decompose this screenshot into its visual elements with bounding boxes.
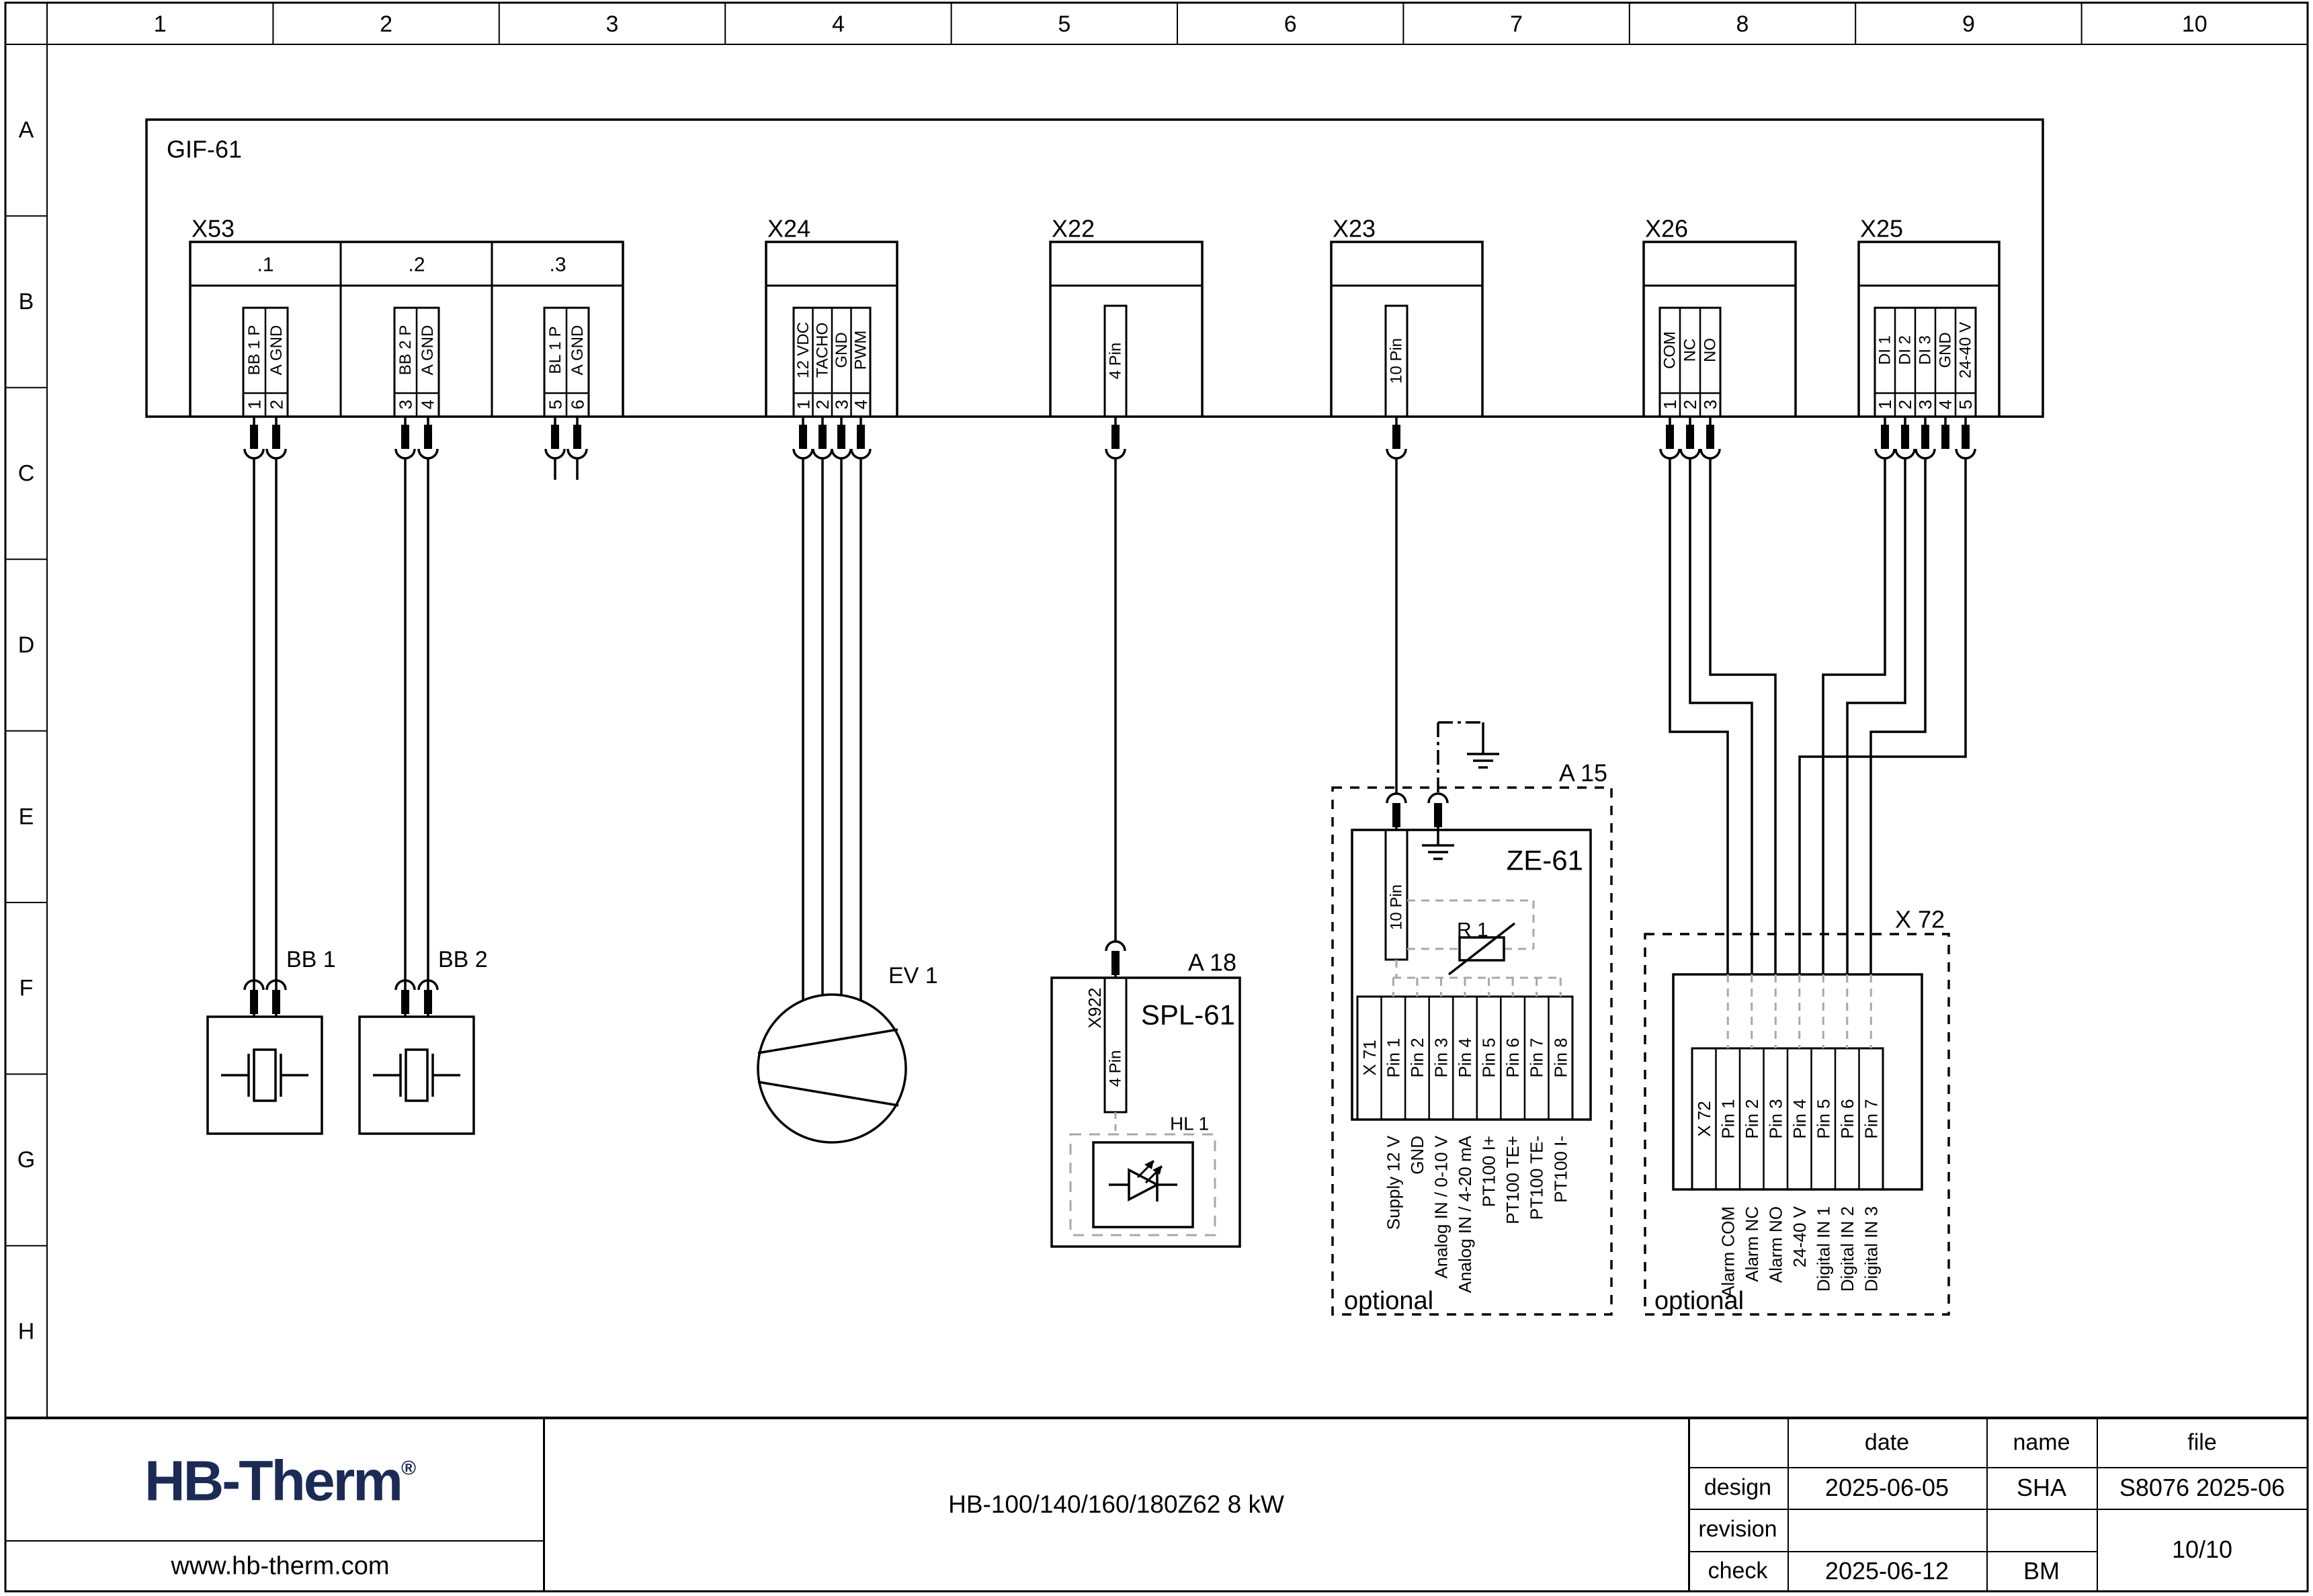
pin-count-label: 4 Pin	[1107, 343, 1125, 380]
pin-signal-label: 12 VDC	[794, 322, 812, 378]
plug-pin	[818, 425, 827, 449]
socket-arc	[832, 449, 851, 458]
pin-signal-label: DI 3	[1917, 335, 1935, 365]
module-a15-ze61: A 15ZE-6110 PinR 1X 71Pin 1Pin 2Pin 3Pin…	[1333, 722, 1611, 1315]
socket-arc	[1701, 449, 1720, 458]
schematic-page: 12345678910ABCDEFGHGIF-61X53.1.2.3BB 1 P…	[0, 0, 2313, 1596]
pin-signal-label: BB 2 P	[396, 325, 415, 376]
fan-circle	[758, 995, 906, 1142]
logo-text: HB-Therm	[144, 1450, 401, 1513]
signal-label: Alarm NC	[1742, 1206, 1762, 1282]
module-label: A 18	[1188, 949, 1236, 976]
plug-pin	[250, 425, 258, 449]
connector-group-label: .3	[549, 254, 566, 276]
grid-column-label: 5	[1058, 11, 1070, 37]
pin-number: 2	[267, 400, 287, 409]
socket-arc	[546, 449, 564, 458]
shape	[254, 1050, 276, 1101]
grid-row-label: C	[18, 461, 35, 487]
pin-number: 3	[396, 400, 416, 409]
terminal-pin-label: Pin 6	[1503, 1038, 1523, 1077]
terminal-pin-label: Pin 6	[1837, 1099, 1857, 1138]
socket-arc	[1387, 794, 1406, 803]
title-block: HB-Therm® www.hb-therm.com HB-100/140/16…	[5, 1417, 2308, 1591]
plug-pin	[1434, 803, 1442, 827]
pin-number: 1	[1660, 400, 1680, 409]
component-label: BB 1	[286, 947, 336, 972]
signal-label: Analog IN / 0-10 V	[1431, 1135, 1451, 1278]
wires	[254, 458, 1966, 1001]
signal-label: Digital IN 1	[1813, 1206, 1833, 1292]
divider	[2097, 1417, 2098, 1591]
socket-arc	[1429, 794, 1447, 803]
row-label-design: design	[1704, 1475, 1771, 1501]
grid-column-label: 8	[1736, 11, 1749, 37]
design-name: SHA	[2017, 1474, 2066, 1502]
connector-x53: X53.1.2.3BB 1 P1A GND2BB 2 P3A GND4BL 1 …	[190, 215, 623, 459]
website-link[interactable]: www.hb-therm.com	[171, 1552, 389, 1581]
pin-count-label: 4 Pin	[1107, 1050, 1125, 1087]
terminal-pin-label: Pin 8	[1550, 1038, 1570, 1077]
module-x72: X 72X 72Pin 1Pin 2Pin 3Pin 4Pin 5Pin 6Pi…	[1645, 906, 1949, 1316]
main-unit-label: GIF-61	[167, 136, 242, 163]
wire-alarm-com	[1670, 458, 1728, 974]
grid-row-label: A	[19, 118, 34, 143]
connector-x22: X224 Pin	[1050, 215, 1202, 459]
connector-group-label: .2	[408, 254, 425, 276]
plug-pin	[1962, 425, 1970, 449]
grid-column-label: 9	[1962, 11, 1975, 37]
terminal-pin-label: Pin 1	[1718, 1099, 1738, 1138]
pin-signal-label: TACHO	[813, 323, 831, 378]
pin-signal-label: A GND	[267, 325, 286, 376]
terminal-pin-label: Pin 2	[1407, 1038, 1427, 1077]
socket-arc	[851, 449, 870, 458]
grid-row-label: D	[18, 632, 35, 658]
plug-pin	[1111, 425, 1120, 449]
terminal-pin-label: Pin 7	[1861, 1099, 1881, 1138]
check-date: 2025-06-12	[1825, 1557, 1949, 1585]
signal-label: Alarm COM	[1718, 1206, 1738, 1298]
plug-pin	[424, 425, 432, 449]
plug-pin	[1921, 425, 1929, 449]
pin-signal-label: GND	[833, 332, 851, 368]
grid-row-label: F	[19, 976, 34, 1001]
shape	[758, 1082, 898, 1105]
socket-arc	[794, 449, 812, 458]
socket-arc	[1106, 941, 1125, 951]
socket-arc	[1876, 449, 1894, 458]
wire-digital-in-1	[1823, 458, 1885, 974]
row-label-revision: revision	[1698, 1517, 1777, 1543]
pin-count-label: 10 Pin	[1388, 338, 1406, 384]
pin-number: 1	[1875, 400, 1895, 409]
pin-signal-label: A GND	[569, 325, 587, 376]
shape	[1105, 978, 1126, 1112]
pin-signal-label: NO	[1701, 338, 1720, 362]
plug-pin	[401, 990, 409, 1014]
check-name: BM	[2023, 1557, 2060, 1585]
file-value: S8076 2025-06	[2119, 1474, 2285, 1502]
plug-pin	[1111, 951, 1120, 975]
grid-column-label: 4	[832, 11, 845, 37]
socket-arc	[1660, 449, 1679, 458]
shape	[406, 1050, 427, 1101]
row-label-check: check	[1708, 1558, 1768, 1585]
plug-pin	[272, 425, 280, 449]
plug-pin	[424, 990, 432, 1014]
socket-arc	[267, 449, 286, 458]
plug-pin	[1686, 425, 1694, 449]
signal-label: PT100 I-	[1550, 1136, 1570, 1203]
terminal-pin-label: Pin 3	[1765, 1099, 1785, 1138]
socket-arc	[396, 449, 415, 458]
divider	[5, 1540, 543, 1542]
connector-label: X922	[1085, 988, 1105, 1029]
divider	[1688, 1509, 2308, 1510]
plug-pin	[857, 425, 865, 449]
pin-signal-label: PWM	[851, 331, 870, 370]
socket-arc	[568, 449, 587, 458]
pin-number: 5	[1955, 400, 1976, 409]
connector-x25: X25DI 11DI 22DI 33GND424-40 V5	[1859, 215, 1999, 459]
pin-signal-label: DI 1	[1876, 335, 1894, 365]
design-date: 2025-06-05	[1825, 1474, 1949, 1502]
signal-label: Supply 12 V	[1383, 1135, 1403, 1230]
pin-signal-label: GND	[1937, 332, 1955, 368]
col-header-name: name	[2013, 1430, 2070, 1456]
shape	[1859, 242, 1999, 417]
plug-pin	[551, 425, 559, 449]
pin-number: 3	[1915, 400, 1935, 409]
optional-label: optional	[1344, 1287, 1433, 1315]
signal-label: Digital IN 3	[1861, 1206, 1881, 1292]
divider	[543, 1417, 545, 1591]
pin-signal-label: BB 1 P	[245, 325, 263, 376]
shape	[1093, 1142, 1193, 1227]
pin-number: 1	[793, 400, 813, 409]
component-bb1: BB 1	[208, 947, 336, 1134]
connector-label: X24	[767, 215, 810, 243]
component-label: EV 1	[888, 963, 938, 989]
connector-label: X26	[1645, 215, 1688, 243]
pin-signal-label: 24-40 V	[1957, 322, 1975, 378]
product-title: HB-100/140/160/180Z62 8 kW	[948, 1490, 1284, 1519]
page-number: 10/10	[2172, 1536, 2232, 1564]
pin-signal-label: COM	[1661, 331, 1679, 369]
divider	[1788, 1417, 1789, 1591]
pin-signal-label: BL 1 P	[546, 326, 564, 374]
socket-arc	[419, 449, 437, 458]
terminal-pin-label: Pin 5	[1813, 1099, 1833, 1138]
plug-pin	[401, 425, 409, 449]
terminal-strip-label: X 72	[1694, 1101, 1714, 1137]
plug-pin	[573, 425, 581, 449]
connector-label: X22	[1052, 215, 1095, 243]
socket-arc	[1387, 449, 1406, 458]
grid-column-label: 6	[1284, 11, 1297, 37]
connector-label: X53	[192, 215, 235, 243]
divider	[1986, 1417, 1988, 1591]
wire-24-40v	[1800, 458, 1966, 974]
grid-row-label: H	[18, 1319, 35, 1345]
shape	[1673, 974, 1922, 1189]
pin-number: 1	[245, 400, 265, 409]
component-ev1: EV 1	[758, 963, 938, 1142]
connector-x24: X2412 VDC1TACHO2GND3PWM4	[766, 215, 897, 459]
grid-row-label: G	[17, 1147, 35, 1173]
module-a18-spl61: A 18SPL-61X9224 PinHL 1	[1052, 941, 1240, 1247]
pin-signal-label: NC	[1681, 339, 1699, 362]
col-header-date: date	[1865, 1430, 1909, 1456]
socket-arc	[1681, 449, 1699, 458]
company-logo: HB-Therm®	[144, 1449, 416, 1514]
pin-count-label: 10 Pin	[1388, 884, 1406, 930]
pin-number: 6	[568, 400, 588, 409]
grid-column-label: 2	[380, 11, 392, 37]
pin-number: 4	[1935, 400, 1955, 409]
pin-number: 5	[546, 400, 566, 409]
signal-label: Analog IN / 4-20 mA	[1455, 1135, 1475, 1293]
terminal-pin-label: Pin 4	[1790, 1099, 1810, 1138]
plug-pin	[1666, 425, 1674, 449]
wire-alarm-no	[1710, 458, 1775, 974]
plug-pin	[1392, 425, 1400, 449]
socket-arc	[1106, 449, 1125, 458]
connector-label: X23	[1333, 215, 1376, 243]
shape	[758, 1030, 898, 1053]
connector-group-label: .1	[257, 254, 274, 276]
terminal-pin-label: Pin 5	[1479, 1038, 1499, 1077]
component-label: BB 2	[438, 947, 488, 972]
pin-number: 4	[418, 400, 438, 409]
signal-label: 24-40 V	[1790, 1206, 1810, 1267]
module-label: A 15	[1559, 759, 1607, 787]
plug-pin	[1901, 425, 1909, 449]
pin-number: 3	[831, 400, 851, 409]
pin-number: 2	[812, 400, 833, 409]
plug-pin	[1941, 425, 1949, 449]
plug-pin	[1392, 803, 1400, 827]
divider	[5, 1417, 2308, 1419]
terminal-pin-label: Pin 7	[1527, 1038, 1547, 1077]
signal-label: Digital IN 2	[1837, 1206, 1857, 1292]
socket-arc	[1896, 449, 1915, 458]
terminal-pin-label: Pin 3	[1431, 1038, 1451, 1077]
plug-pin	[250, 990, 258, 1014]
grid-row-label: B	[19, 289, 34, 314]
plug-pin	[1706, 425, 1714, 449]
connector-x23: X2310 Pin	[1331, 215, 1482, 459]
wire-alarm-nc	[1690, 458, 1752, 974]
wiring-diagram: 12345678910ABCDEFGHGIF-61X53.1.2.3BB 1 P…	[0, 0, 2313, 1596]
terminal-pin-label: Pin 4	[1455, 1038, 1475, 1077]
registered-mark: ®	[401, 1458, 416, 1480]
signal-label: GND	[1407, 1136, 1427, 1175]
plug-pin	[799, 425, 807, 449]
pin-number: 4	[851, 400, 871, 409]
terminal-pin-label: Pin 1	[1383, 1038, 1403, 1077]
plug-pin	[1881, 425, 1889, 449]
terminal-pin-label: Pin 2	[1742, 1099, 1762, 1138]
socket-arc	[813, 449, 832, 458]
socket-arc	[1956, 449, 1975, 458]
pin-number: 2	[1895, 400, 1915, 409]
connector-label: X25	[1860, 215, 1903, 243]
divider	[1688, 1417, 1690, 1591]
pin-signal-label: A GND	[419, 325, 437, 376]
signal-label: PT100 TE-	[1527, 1136, 1547, 1220]
module-label: X 72	[1895, 906, 1945, 933]
board-label: ZE-61	[1507, 845, 1583, 876]
signal-label: PT100 I+	[1479, 1136, 1499, 1207]
grid-column-label: 3	[606, 11, 619, 37]
grid-row-label: E	[19, 804, 34, 829]
grid-column-label: 10	[2182, 11, 2207, 37]
grid-column-label: 1	[154, 11, 167, 37]
connector-x26: X26COM1NC2NO3	[1644, 215, 1796, 459]
grid-column-label: 7	[1510, 11, 1523, 37]
col-header-file: file	[2187, 1430, 2216, 1456]
signal-label: Alarm NO	[1765, 1206, 1785, 1283]
board-label: SPL-61	[1141, 999, 1235, 1031]
pin-number: 2	[1680, 400, 1700, 409]
signal-label: PT100 TE+	[1503, 1136, 1523, 1224]
plug-pin	[272, 990, 280, 1014]
divider	[1688, 1467, 2308, 1468]
divider	[1688, 1551, 2098, 1552]
socket-arc	[1916, 449, 1935, 458]
pin-number: 3	[1700, 400, 1720, 409]
wire-digital-in-3	[1871, 458, 1925, 974]
optional-label: optional	[1654, 1287, 1744, 1315]
component-bb2: BB 2	[360, 947, 488, 1134]
socket-arc	[245, 449, 263, 458]
plug-pin	[837, 425, 845, 449]
lamp-label: HL 1	[1170, 1114, 1209, 1134]
wire-digital-in-2	[1847, 458, 1905, 974]
terminal-strip-label: X 71	[1359, 1040, 1380, 1076]
pin-signal-label: DI 2	[1896, 335, 1915, 365]
